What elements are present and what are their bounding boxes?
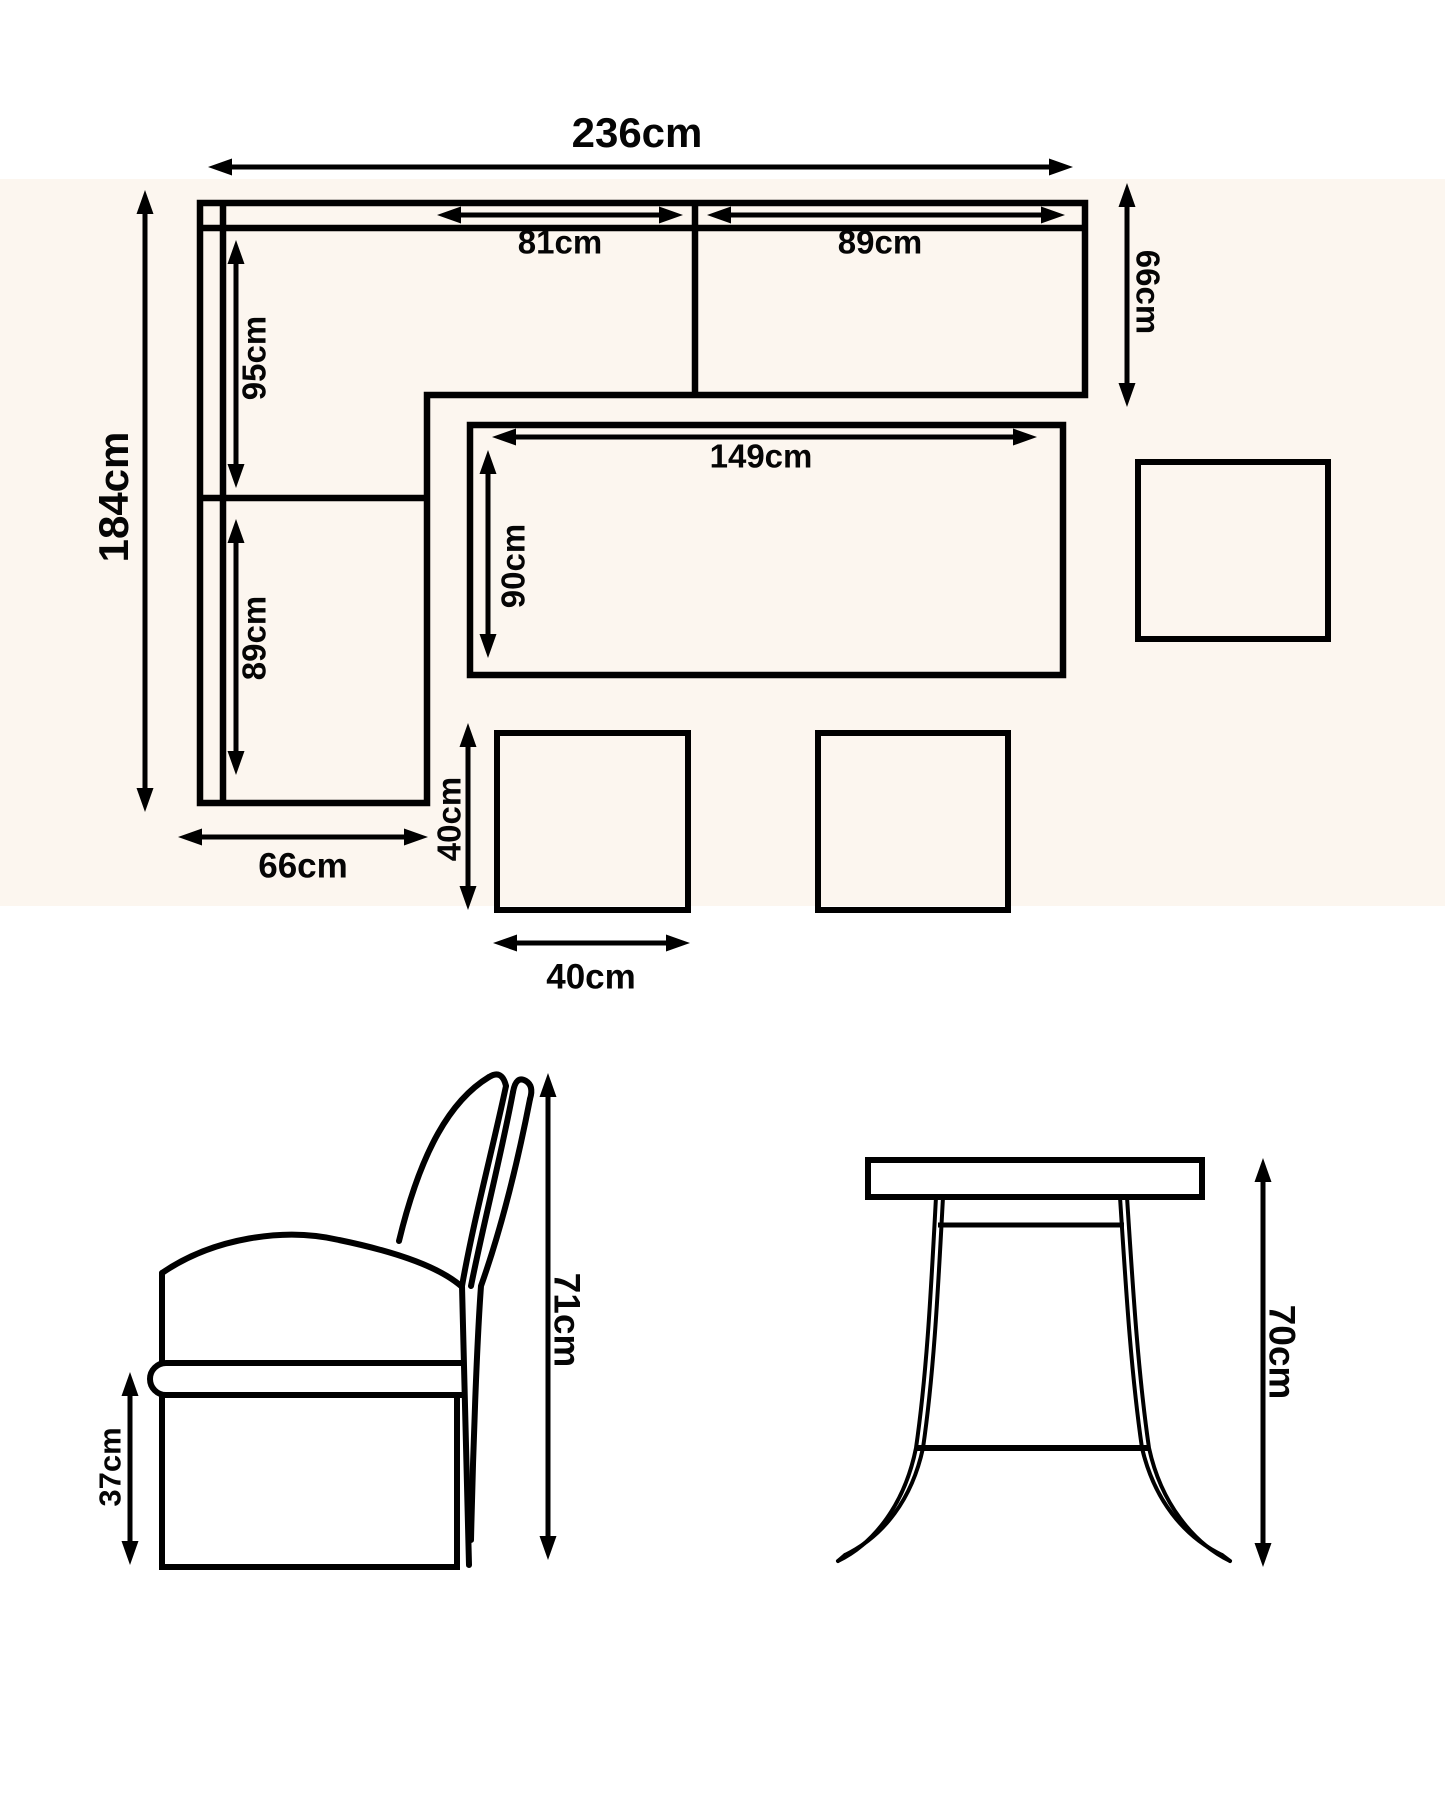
dimension-arrow-head: [460, 886, 477, 910]
dimension-arrow-head: [1255, 1543, 1272, 1567]
dim-sofa-left-section-lower: 89cm: [238, 596, 271, 680]
dimension-arrow-head: [1041, 207, 1065, 224]
dimension-arrow-head: [122, 1541, 139, 1565]
dimension-arrow-head: [666, 935, 690, 952]
dim-sofa-right-arm-depth: 66cm: [1132, 250, 1165, 334]
dim-sofa-top-section-left: 81cm: [518, 226, 602, 259]
dimension-arrow-head: [659, 207, 683, 224]
dim-sofa-top-section-right: 89cm: [838, 226, 922, 259]
dimension-arrow-head: [437, 207, 461, 224]
dimension-arrow-head: [460, 723, 477, 747]
dim-table-length: 149cm: [710, 440, 813, 473]
table-leg-right-outer: [1127, 1197, 1230, 1561]
chair-seat-cushion: [150, 1363, 462, 1395]
chair-back-blade1-tip: [489, 1074, 506, 1086]
dim-chair-overall-height: 71cm: [549, 1273, 586, 1368]
dimension-arrow-head: [707, 207, 731, 224]
dim-side-table-height: 70cm: [1264, 1305, 1301, 1400]
stool-plan-right: [1138, 462, 1328, 639]
dimension-arrow-head: [137, 190, 154, 214]
table-leg-left-inner: [845, 1197, 943, 1555]
dimension-arrow-head: [122, 1372, 139, 1396]
sofa-plan-outline: [198, 203, 1085, 803]
dimension-arrow-head: [228, 519, 245, 543]
dimension-arrow-head: [1255, 1158, 1272, 1182]
dimension-arrow-head: [540, 1536, 557, 1560]
furniture-dimension-diagram: 236cm 81cm 89cm 66cm 184cm 95cm 89cm 66c…: [0, 0, 1445, 1806]
dim-stool-width: 40cm: [546, 960, 636, 995]
dimension-arrow-head: [404, 829, 428, 846]
dimension-arrow-head: [540, 1073, 557, 1097]
dimension-arrow-head: [178, 829, 202, 846]
chair-base: [162, 1395, 457, 1567]
table-side-legs: [838, 1197, 1230, 1561]
dimension-arrow-head: [480, 450, 497, 474]
dimension-arrow-head: [1119, 183, 1136, 207]
dimension-arrow-head: [1049, 159, 1073, 176]
dimension-arrow-head: [208, 159, 232, 176]
table-leg-left-outer: [838, 1197, 936, 1561]
dim-stool-depth: 40cm: [433, 777, 466, 861]
chair-back-blade2-tip: [513, 1079, 531, 1099]
dim-sofa-overall-depth: 184cm: [93, 432, 135, 563]
dimension-arrow-head: [480, 634, 497, 658]
dimension-arrow-head: [228, 240, 245, 264]
table-side-view: [838, 1160, 1230, 1561]
dimension-arrow-head: [228, 751, 245, 775]
diagram-line-art: [0, 0, 1445, 1806]
chair-arm-arch: [162, 1235, 461, 1286]
dimension-arrow-head: [493, 935, 517, 952]
dimension-arrow-head: [1119, 383, 1136, 407]
dim-sofa-left-arm-width: 66cm: [258, 849, 348, 884]
dim-sofa-overall-width: 236cm: [572, 112, 703, 154]
dim-table-width: 90cm: [497, 524, 530, 608]
sofa-outer-outline: [200, 203, 1085, 803]
stool-plan-bottom-left: [497, 733, 688, 910]
dim-sofa-left-section-upper: 95cm: [238, 316, 271, 400]
chair-side-view: [150, 1074, 531, 1567]
dimension-arrow-head: [1013, 429, 1037, 446]
table-side-top: [868, 1160, 1202, 1197]
dimension-arrow-head: [137, 788, 154, 812]
dim-chair-seat-height: 37cm: [95, 1427, 126, 1506]
table-leg-right-foot: [1222, 1555, 1230, 1561]
dimension-arrow-head: [492, 429, 516, 446]
stool-plan-bottom-right: [818, 733, 1008, 910]
dimension-arrow-head: [228, 464, 245, 488]
